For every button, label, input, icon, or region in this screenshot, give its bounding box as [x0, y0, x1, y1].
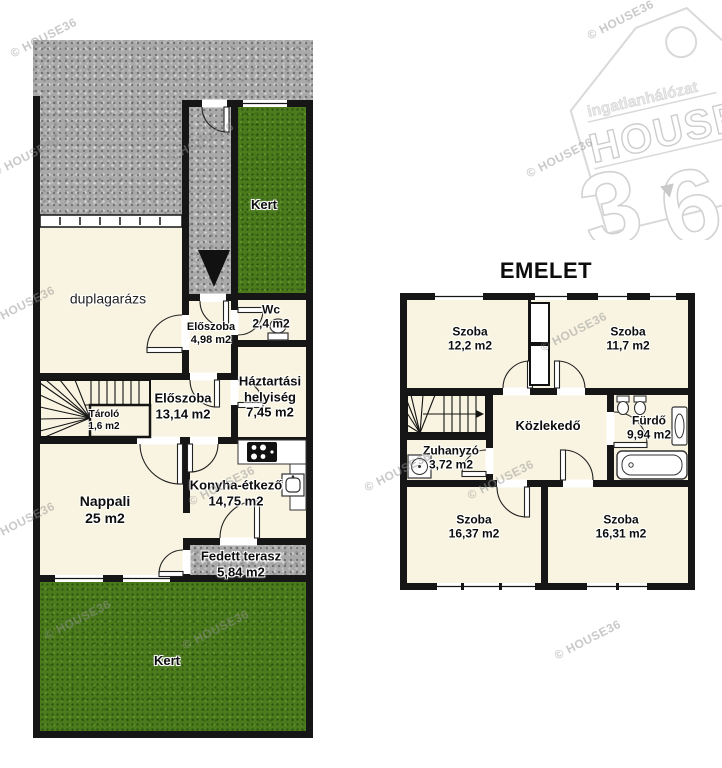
bathtub-icon — [617, 451, 687, 479]
toilet-icon-furdo — [617, 396, 646, 415]
room-label-nappali: Nappali 25 m2 — [80, 493, 131, 527]
garage-door — [40, 215, 182, 227]
room-label-eloszoba-small: Előszoba 4,98 m2 — [187, 321, 235, 347]
room-label-zuhanyzo: Zuhanyzó 3,72 m2 — [423, 444, 479, 473]
room-label-kert-top: Kert — [251, 197, 277, 213]
room-label-furdo: Fürdő 9,94 m2 — [627, 414, 671, 443]
entrance-arrow-icon — [198, 250, 230, 287]
upper-floor-title: EMELET — [500, 258, 592, 284]
kitchen-sink-icon — [282, 474, 304, 496]
room-label-szoba-top-right: Szoba 11,7 m2 — [606, 325, 649, 354]
room-label-tarolo: Tároló 1,6 m2 — [88, 409, 119, 433]
room-label-szoba-top-left: Szoba 12,2 m2 — [448, 325, 492, 354]
washbasin-icon — [672, 407, 687, 445]
room-label-terasz: Fedett terasz 5,84 m2 — [201, 548, 281, 579]
wardrobe-icon — [530, 303, 549, 385]
house36-logo: ingatlanhálózat HOUSE 3 6 — [545, 0, 722, 240]
logo-digit-6: 6 — [649, 144, 722, 240]
stair-direction-arrow — [476, 410, 484, 418]
room-label-szoba-bottom-left: Szoba 16,37 m2 — [449, 513, 500, 542]
room-label-wc: Wc 2,4 m2 — [252, 303, 289, 332]
room-label-konyha: Konyha-étkező 14,75 m2 — [190, 477, 282, 508]
watermark-text: © HOUSE36 — [552, 617, 623, 662]
stove-icon — [247, 442, 277, 462]
room-label-kert-bottom: Kert — [154, 653, 180, 669]
room-label-eloszoba-large: Előszoba 13,14 m2 — [154, 390, 211, 421]
room-label-garage: duplagarázs — [70, 291, 146, 308]
room-label-haztartasi: Háztartási helyiség 7,45 m2 — [239, 374, 301, 421]
room-label-szoba-bottom-right: Szoba 16,31 m2 — [596, 513, 647, 542]
staircase-upper — [407, 395, 486, 433]
floorplan-canvas: duplagarázs Kert Wc 2,4 m2 Előszoba 4,98… — [0, 0, 722, 768]
room-label-kozlekedo: Közlekedő — [515, 418, 580, 434]
